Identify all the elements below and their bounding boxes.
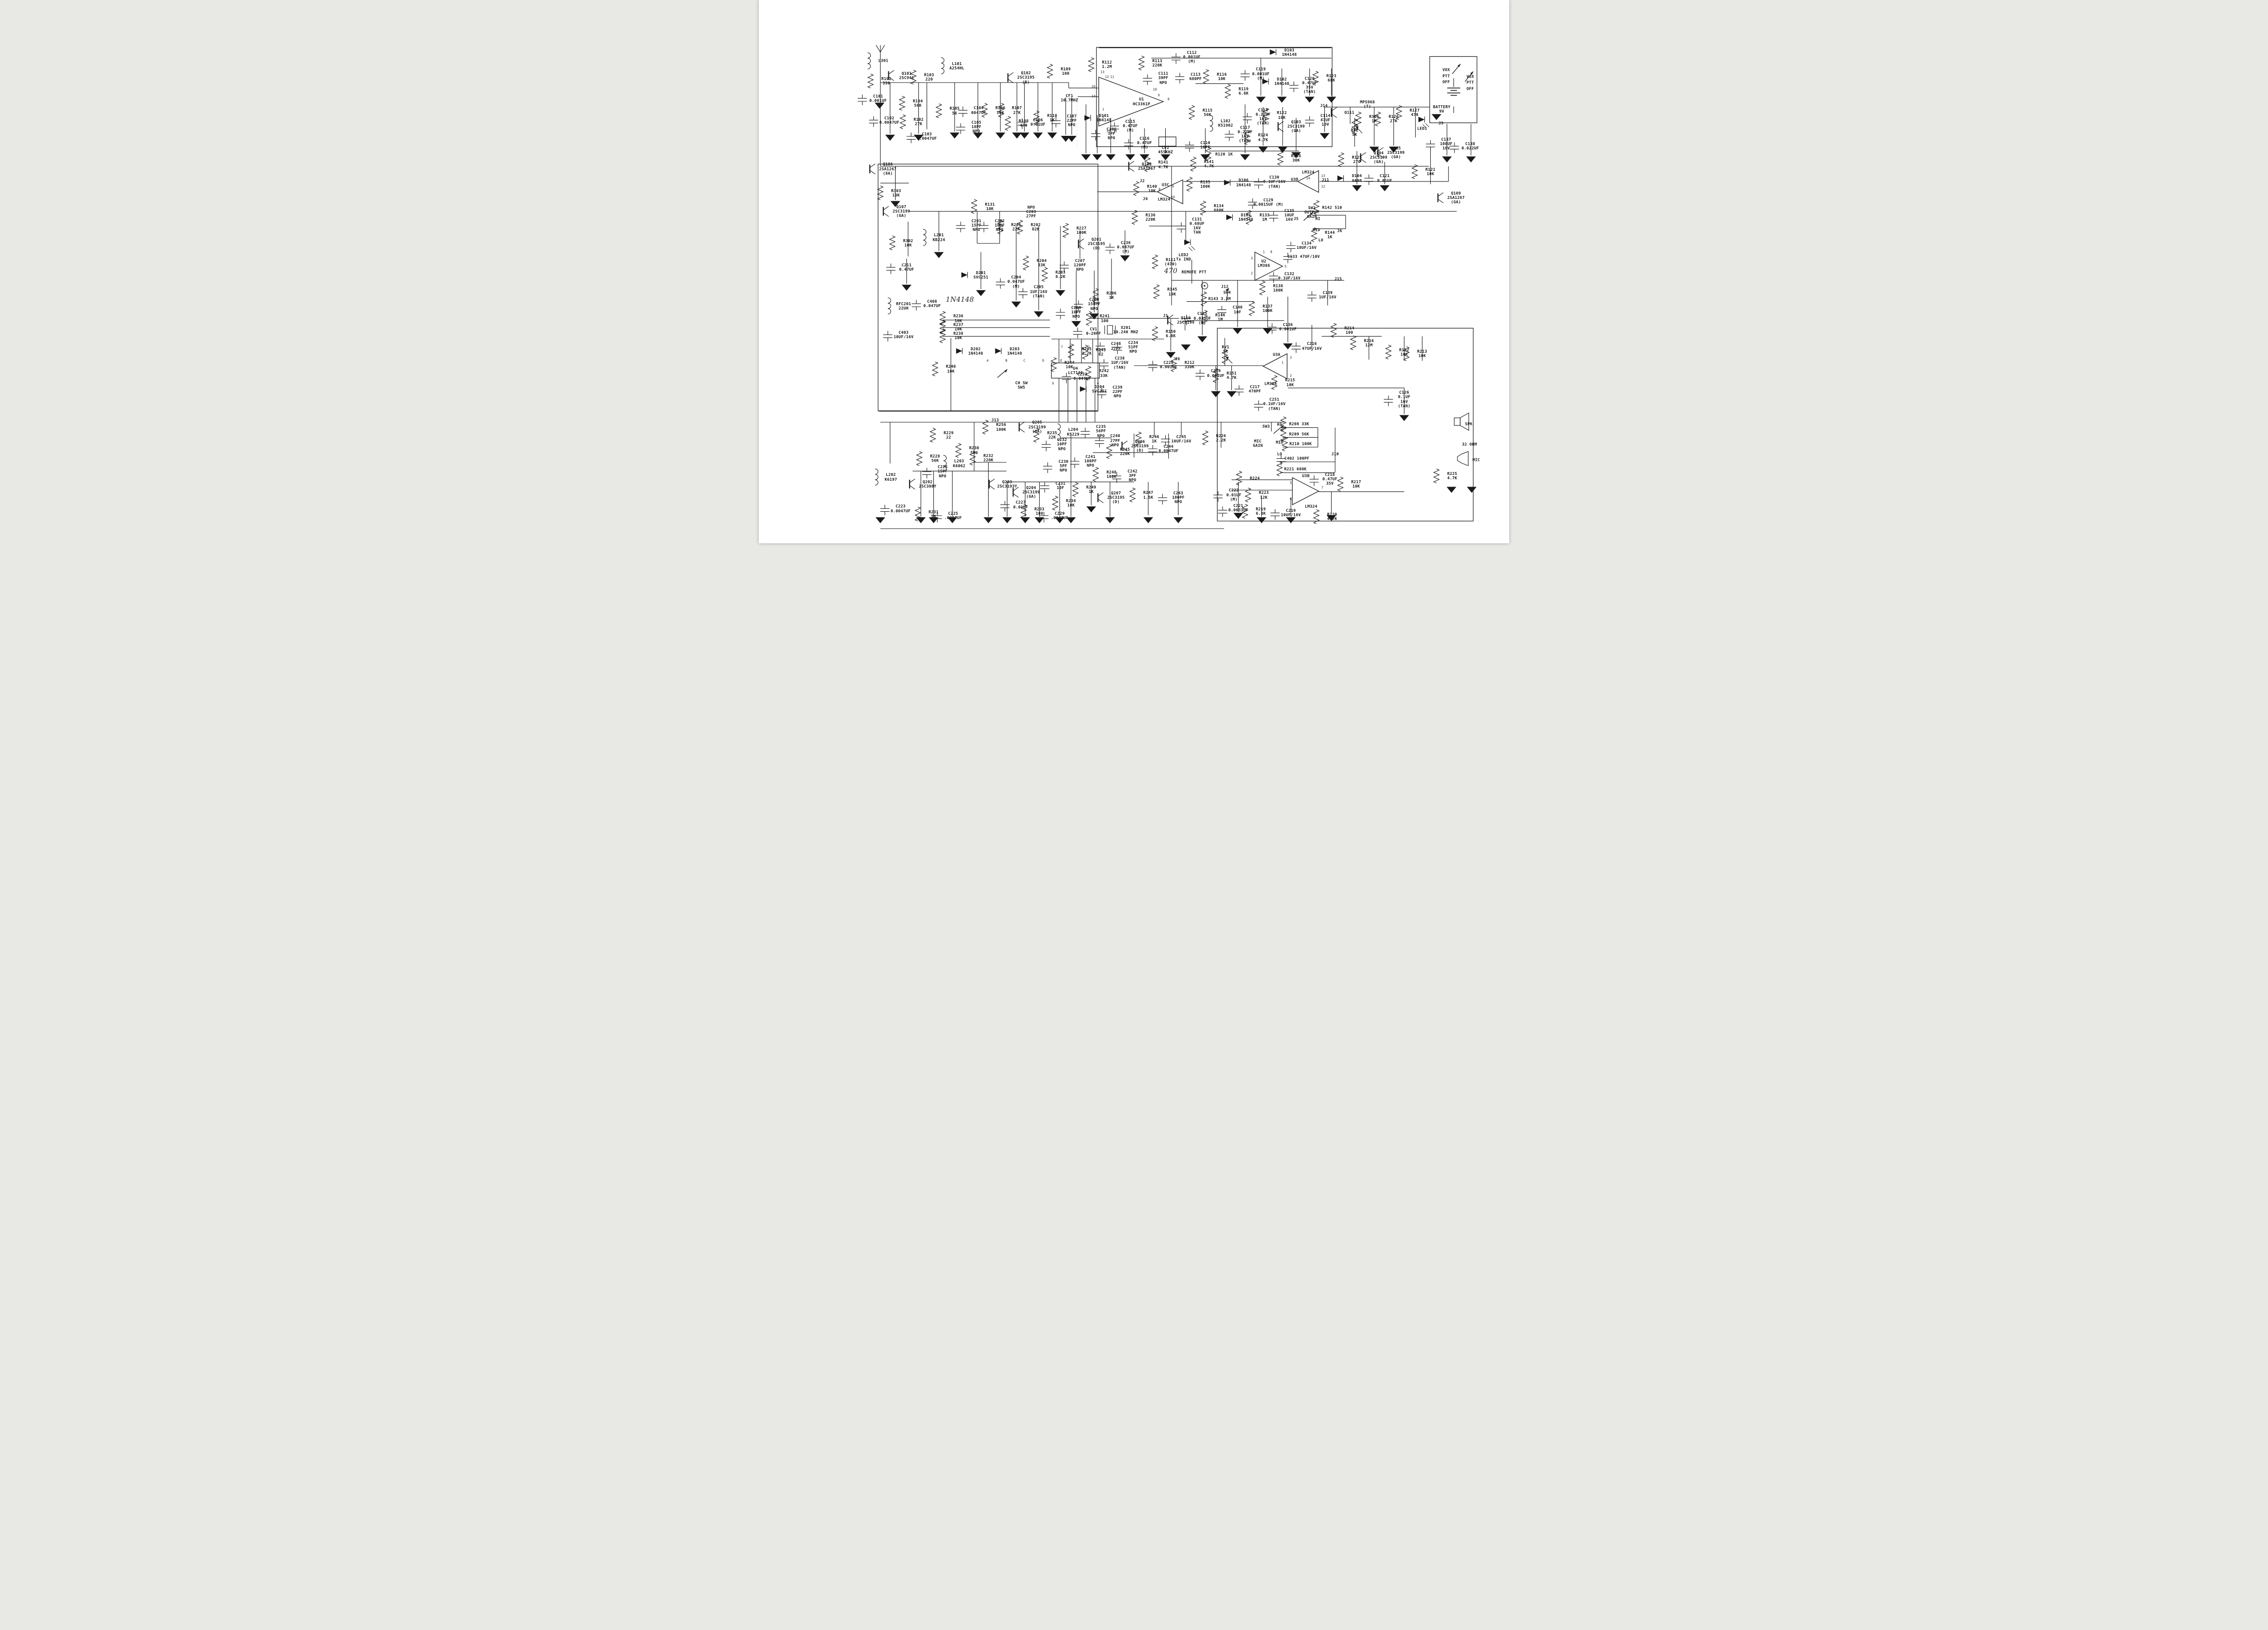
component-label: C229 .0047UF [1051, 511, 1068, 520]
component-label: C232 10PF NPO [1057, 438, 1067, 451]
component-label: C107 22PF NPO [1067, 114, 1077, 128]
component-label: R137 100K [1263, 304, 1273, 313]
component-label: R213 10K [1417, 349, 1427, 358]
component-label: R206 1K [1107, 291, 1117, 300]
component-label: R201 22K [1011, 223, 1021, 231]
component-label: J2 [1140, 179, 1144, 183]
component-label: R205 2.2K [1082, 346, 1092, 355]
component-label: R227 100K [1077, 226, 1087, 235]
component-label: C129 0.0015UF (M) [1254, 197, 1284, 206]
component-label: C402 100PF [1285, 456, 1309, 461]
schematic-labels-layer: L301R101 330Q101 2SC941R103 220C101 0.00… [759, 0, 1509, 543]
component-label: C408 0.047UF [923, 299, 941, 308]
component-label: R208 33K [1289, 422, 1309, 426]
component-label: MID [1276, 440, 1283, 444]
component-label: R142 510 [1322, 205, 1342, 210]
component-label: J6 [1337, 228, 1342, 233]
component-label: OFF [1467, 86, 1474, 91]
component-label: R217 10K [1351, 480, 1361, 489]
component-label: Q109 2SA1267 (GA) [1447, 191, 1465, 205]
component-label: R235 22K [1047, 431, 1058, 440]
component-label: C134 10UF/16V [1297, 241, 1317, 250]
component-label: C105 18PF NPO [971, 120, 981, 134]
component-label: J4 [1143, 196, 1148, 201]
component-label: C202 10PF NPO [995, 219, 1005, 232]
component-label: C120 0.47UF 35V (TAN) [1302, 76, 1317, 94]
component-label: C209 10PF NPO [1071, 306, 1081, 319]
component-label: R302 10K [903, 238, 914, 247]
component-label: C217 470PF [1249, 385, 1261, 393]
component-label: R120 1K [1215, 152, 1233, 156]
component-label: C102 0.0047UF [880, 115, 899, 124]
component-label: R140 10K [1147, 184, 1157, 193]
pin-label: 2 [1251, 272, 1253, 276]
component-label: R105 56 [950, 106, 960, 115]
pin-label: 15 [1107, 130, 1110, 133]
component-label: LM324 [1158, 197, 1171, 201]
component-label: VOX [1467, 74, 1474, 79]
component-label: R109 100 [1061, 67, 1071, 76]
component-label: D107 1N4148 [1239, 213, 1254, 222]
component-label: R124 4.7K [1258, 133, 1268, 142]
component-label: R231 56 [929, 509, 939, 518]
handwritten-note: 1N4148 [946, 297, 974, 305]
component-label: R224 [1250, 476, 1260, 480]
component-label: L102 K51902 [1218, 119, 1233, 128]
component-label: J15 [1335, 277, 1342, 281]
component-label: C236 0.047UF (M) [1117, 241, 1135, 254]
component-label: VOX [1442, 68, 1450, 72]
pin-label: 14 [1306, 177, 1310, 180]
component-label: R248 100K [1107, 470, 1117, 479]
component-label: D103 1N4148 [1282, 48, 1297, 56]
component-label: R243 82 [1096, 348, 1106, 357]
component-label: PTT [1442, 74, 1450, 78]
component-label: LM324 [1264, 381, 1277, 386]
component-label: R303 10K [891, 188, 901, 197]
schematic-page: L301R101 330Q101 2SC941R103 220C101 0.00… [759, 0, 1509, 543]
component-label: D104 0A90 [1352, 174, 1362, 182]
component-label: C138 0.022UF [1462, 142, 1479, 150]
component-label: U3C [1162, 182, 1169, 187]
component-label: R123 68K [1326, 74, 1337, 82]
component-label: R106 56K [995, 106, 1006, 114]
component-label: C238 1UF/16V (TAN) [1111, 356, 1128, 370]
component-label: LED1 [1417, 127, 1427, 131]
component-label: R138 100K [1273, 283, 1283, 292]
component-label: R215 10K [1285, 378, 1295, 387]
component-label: C211 0.47UF [899, 263, 914, 272]
component-label: Q207 2SC3195 (D) [1107, 491, 1125, 505]
component-label: L201 KB224 [932, 233, 945, 242]
component-label: Q107 2SC3199 (GA) [893, 205, 910, 218]
pin-label: 11 [1110, 75, 1114, 79]
component-label: C136 0.001UF [1279, 323, 1297, 331]
pin-label: 9 [1172, 185, 1174, 189]
component-label: R144 1K [1325, 230, 1335, 239]
component-label: R135 100K [1200, 179, 1210, 188]
component-label: R143 3.3M [1208, 296, 1231, 301]
component-label: L101 A254HL [949, 61, 964, 70]
component-label: SW3 [1262, 424, 1270, 429]
component-label: C140 10F [1233, 305, 1243, 314]
pin-label: 8 [1070, 345, 1072, 349]
component-label: C248 27PF [1111, 342, 1121, 350]
component-label: Q106 2SA1267 (8A) [879, 163, 897, 176]
component-label: C205 1UF/16V (TAN) [1030, 285, 1047, 299]
component-label: CF1 10.7MHZ [1061, 93, 1078, 102]
component-label: U3D [1291, 177, 1298, 181]
component-label: R127 470 [1410, 108, 1420, 117]
component-label: R118 30K [1291, 154, 1301, 163]
component-label: U3A [1273, 353, 1280, 357]
component-label: R223 12K [1259, 490, 1269, 499]
component-label: R113 220K [1152, 59, 1162, 67]
component-label: R237 10K [953, 323, 963, 331]
component-label: R236 10K [953, 314, 963, 323]
pin-label: 6 [1290, 498, 1292, 501]
component-label: R102 27K [914, 117, 924, 126]
pin-label: 13 [1321, 174, 1325, 178]
pin-label: 9 [1158, 94, 1159, 97]
component-label: C222 0.01UF (M) [1226, 489, 1241, 502]
component-label: MIC GAIN [1253, 439, 1263, 448]
component-label: R141 4.7K [1158, 160, 1169, 169]
component-label: R107 27K [1012, 106, 1022, 114]
pin-label: 12 [1321, 185, 1325, 189]
component-label: LO [1277, 452, 1282, 456]
component-label: C111 39PF NPO [1158, 71, 1169, 85]
component-label: Q105 2SC3199 (GA) [1387, 146, 1404, 160]
component-label: C227 0.01UF [1013, 500, 1028, 509]
component-label: C113 680PF [1190, 72, 1202, 81]
component-label: C116 0.47UF (M) [1137, 136, 1152, 150]
component-label: Q108 2SA1267 [1138, 162, 1156, 171]
component-label: RFC201 22UH [896, 301, 911, 310]
component-label: RV1 5K [1222, 345, 1229, 354]
component-label: D102 1N4148 [1274, 77, 1289, 86]
pin-label: 16 [1092, 85, 1095, 89]
component-label: C112 0.001UF (M) [1183, 50, 1201, 64]
component-label: R133 1M [1259, 213, 1270, 222]
component-label: R249 1K [1086, 485, 1096, 494]
component-label: REMOTE PTT [1182, 270, 1207, 275]
component-label: U3B [1302, 474, 1309, 478]
pin-label: 7 [1061, 345, 1063, 349]
component-label: R108 470 [1019, 119, 1029, 128]
component-label: LO [1319, 238, 1323, 242]
component-label: J12 [1221, 285, 1228, 289]
component-label: OFF [1442, 80, 1450, 84]
component-label: R238 10K [953, 331, 963, 340]
pin-label: 5 [1285, 265, 1287, 268]
component-label: C243 100PF NPO [1172, 491, 1185, 505]
component-label: D203 1N4148 [1007, 346, 1022, 355]
component-label: Q110 2SC3199 [1177, 315, 1194, 324]
pin-label: 1 [1088, 345, 1090, 349]
pin-label: A [987, 359, 989, 362]
component-label: C103 0.0047UF [917, 132, 937, 141]
component-label: C106 0.01UF [1030, 118, 1045, 127]
pin-label: 8 [1168, 98, 1170, 101]
component-label: R301 1K [1369, 114, 1379, 123]
component-label: R132 10K [1399, 348, 1409, 357]
component-label: Q204 2SC3199 (GA) [1023, 486, 1040, 499]
pin-label: D [1042, 359, 1044, 362]
component-label: R256 100K [996, 423, 1006, 431]
component-label: R212 330K [1185, 360, 1195, 369]
component-label: C117 0.22UF 16V (TAN) [1238, 125, 1253, 143]
component-label: C139 1UF/16V [1319, 291, 1337, 299]
component-label: C110 10PF [1200, 141, 1210, 149]
component-label: RV2 5K [1351, 128, 1358, 137]
pin-label: 7 [1322, 486, 1323, 489]
pin-label: 1 [1263, 250, 1265, 254]
component-label: R233 100 [1034, 507, 1044, 516]
pin-label: 10 [1171, 196, 1175, 199]
component-label: R210 100K [1289, 441, 1312, 446]
component-label: R229 22 [944, 431, 954, 440]
pin-label: 14 [1092, 95, 1095, 98]
component-label: R115 56K [1203, 108, 1213, 117]
component-label: R225 4.7K [1447, 472, 1457, 480]
component-label: R241 100 [1100, 314, 1110, 323]
component-label: Q111 [1344, 110, 1354, 114]
component-label: C132 0.1UF/16V [1278, 272, 1301, 280]
component-label: R119 6.8K [1239, 87, 1249, 96]
component-label: R131 10K [985, 202, 995, 211]
component-label: BATTERY 9V [1433, 105, 1451, 114]
component-label: R244 10K [1064, 360, 1075, 369]
component-label: R204 33K [1037, 259, 1047, 267]
component-label: R112 1.2M [1102, 60, 1112, 69]
component-label: C240 27PF NPO [1110, 434, 1121, 448]
component-label: PTT [1467, 81, 1474, 85]
component-label: X201 10.240 MHZ [1113, 326, 1138, 334]
component-label: HI [1277, 422, 1282, 426]
component-label: R240 10K [946, 364, 956, 373]
component-label: C208 150PF NPO [1088, 297, 1101, 311]
component-label: CF2 455KHZ [1158, 146, 1173, 154]
component-label: C233 0.047UF [1074, 372, 1091, 381]
component-label: C135 10UF 16V [1284, 209, 1294, 222]
pin-label: 8 [1158, 188, 1160, 191]
component-label: C137 100UF 10V [1440, 137, 1452, 151]
component-label: R242 33K [1099, 369, 1109, 377]
component-label: C218 0.47UF 35V [1322, 473, 1338, 486]
component-label: LM324 [1305, 504, 1318, 508]
component-label: C114 47UF 10V [1321, 114, 1331, 127]
component-label: C223 0.0047UF [891, 504, 911, 513]
component-label: MID [1313, 228, 1320, 232]
pin-label: 5 [1290, 481, 1292, 485]
component-label: D204 SVC251 [1092, 385, 1107, 393]
component-label: R103 220 [924, 73, 934, 81]
component-label: C214 0.001UF [1207, 369, 1224, 377]
component-label: C221 0.0033UF (M) [1228, 504, 1248, 517]
pin-label: 3 [1251, 257, 1253, 260]
component-label: C235 56PF NPO [1096, 424, 1106, 438]
component-label: C119 0.001UF (M) [1252, 67, 1270, 81]
pin-label: B [1005, 359, 1007, 362]
component-label: C231 10F [1056, 481, 1066, 490]
component-label: R245 220K [1120, 447, 1130, 456]
component-label: Q202 2SC380Y [919, 480, 936, 489]
component-label: C207 120PF NPO [1074, 259, 1086, 272]
component-label: J8 [1175, 357, 1180, 361]
component-label: R151 4.7K [1226, 371, 1237, 380]
pin-label: C [1024, 359, 1026, 362]
component-label: R221 680K [1284, 467, 1306, 471]
pin-label: 12 [1105, 75, 1109, 79]
component-label: C251 0.1UF/16V (TAN) [1263, 397, 1286, 411]
component-label: J5 [1294, 217, 1299, 221]
pin-label: 1 [1282, 361, 1284, 364]
component-label: C126 0.1UF 16V (TAN) [1398, 391, 1411, 408]
component-label: LM324 [1302, 170, 1315, 174]
component-label: R111 (470) [1164, 258, 1177, 266]
component-label: C204 0.047UF (M) [1008, 275, 1025, 289]
component-label: R232 220K [983, 454, 994, 462]
component-label: C125 0.033UF (M) [1193, 312, 1211, 326]
pin-label: 6 [1115, 130, 1117, 133]
component-label: R247 1.5K [1143, 490, 1154, 499]
component-label: MIC [1472, 457, 1480, 462]
component-label: R226 2.2K [1216, 434, 1226, 442]
component-label: C115 0.47UF (M) [1123, 119, 1138, 133]
component-label: R126 27K [1388, 114, 1399, 123]
component-label: C101 0.001UF [869, 94, 887, 103]
pin-label: 9 [1052, 382, 1054, 385]
component-label: Q101 2SC941 [899, 71, 914, 80]
pin-label: 1 [1102, 108, 1104, 112]
component-label: R219 6.8K [1256, 507, 1266, 516]
component-label: R145 10K [1167, 287, 1177, 296]
handwritten-note: 470 [1164, 268, 1177, 276]
component-label: R202 82K [1031, 223, 1041, 231]
component-label: C130 0.1UF/16V (TAN) [1263, 175, 1286, 189]
pin-label: 8 [1271, 250, 1273, 254]
component-label: C201 15PF NPO [971, 219, 981, 232]
component-label: D201 SVC251 [974, 271, 989, 279]
component-label: C220 0.001UF [1160, 360, 1177, 369]
component-label: U1 HC3361P [1133, 97, 1150, 106]
component-label: C225 .0047UF [945, 511, 962, 520]
component-label: Q104 2SC3199 (GA) [1370, 151, 1387, 164]
component-label: L202 K6197 [884, 473, 897, 481]
component-label: J3 [1438, 121, 1443, 126]
component-label: C403 10UF/16V [894, 330, 914, 339]
component-label: R230 560 [969, 446, 979, 455]
component-label: C219 10UF/16V [1281, 508, 1301, 517]
component-label: R116 10K [1217, 72, 1227, 81]
component-label: C241 100PF NPO [1084, 455, 1097, 468]
component-label: R110 1K [1047, 114, 1058, 122]
component-label: C244 0.0047UF [1158, 444, 1178, 453]
component-label: CV1 0-20PF [1086, 327, 1101, 336]
component-label: C104 0047UF [971, 106, 986, 114]
component-label: LED2 Tx IND [1176, 253, 1191, 261]
component-label: U2 LM386 [1257, 259, 1270, 268]
component-label: D106 1N4148 [1236, 178, 1251, 187]
component-label: L301 [879, 59, 889, 63]
component-label: L203 K6062 [953, 459, 965, 468]
component-label: C245 10UF/16V [1171, 435, 1191, 443]
component-label: J10 [1331, 452, 1338, 456]
component-label: R234 10K [1066, 499, 1076, 507]
component-label: Q201 2SC3195 (D) [1088, 237, 1105, 251]
component-label: R214 100 [1344, 326, 1354, 335]
pin-label: 4 [1097, 382, 1099, 385]
component-label: C216 47UF/16V [1302, 342, 1322, 350]
component-label: Q206 2SC3199 (D) [1131, 440, 1149, 453]
pin-label: 13 [1100, 70, 1104, 74]
component-label: R101 330 [881, 77, 892, 85]
component-label: R150 6.8K [1166, 329, 1176, 338]
pin-label: 10 [1153, 88, 1157, 91]
component-label: R136 220K [1145, 213, 1156, 222]
pin-label: 3 [1290, 356, 1292, 359]
component-label: R220 4.7K [1327, 512, 1338, 521]
component-label: J13 [992, 418, 999, 422]
component-label: HI [1315, 217, 1320, 221]
component-label: C239 22PF NPO [1112, 385, 1123, 399]
component-label: J14 [1320, 104, 1327, 108]
pin-label: 2 [1102, 115, 1104, 118]
component-label: R203 8.2K [1056, 270, 1066, 278]
pin-label: E [1060, 359, 1062, 362]
component-label: R121 10K [1425, 167, 1436, 176]
component-label: C242 3PF NPO [1127, 469, 1138, 483]
pin-label: 2 [1290, 374, 1292, 377]
component-label: MPS968 (T) [1360, 100, 1375, 109]
component-label: R216 12M [1364, 339, 1374, 347]
component-label: Q102 2SC3195 (B) [1017, 71, 1035, 84]
component-label: C230 5PF NPO [1059, 459, 1069, 473]
component-label: R104 56K [913, 99, 923, 108]
component-label: D202 1N4148 [968, 346, 983, 355]
component-label: CH SW SW5 [1015, 381, 1028, 390]
component-label: SPK [1465, 422, 1472, 426]
component-label: R125 270 [1352, 155, 1362, 164]
component-label: J1 [1163, 313, 1168, 318]
component-label: L204 K5229 [1067, 427, 1079, 436]
component-label: C234 51PF NPO [1128, 341, 1139, 354]
component-label: Q103 2SC3199 (GA) [1288, 120, 1305, 133]
component-label: R209 56K [1289, 432, 1309, 436]
component-label: R146 1M [1215, 313, 1225, 322]
component-label: R141 4.7K [1204, 160, 1214, 168]
component-label: C131 0.68UF 16V TAN [1190, 217, 1205, 235]
component-label: C118 0.22UF 16V (TAN) [1256, 108, 1271, 126]
component-label: C133 47UF/10V [1288, 254, 1320, 259]
component-label: J11 [1322, 178, 1329, 182]
component-label: SW4 [1224, 290, 1231, 294]
component-label: Q203 2SC3193Y [997, 480, 1017, 489]
component-label: R246 1K [1149, 435, 1159, 443]
component-label: R122 10K [1277, 111, 1287, 119]
component-label: Q205 2SC3199 (6A) [1028, 421, 1046, 434]
component-label: 32 OHM [1462, 442, 1477, 447]
component-label: NPO C203 27PF [1026, 205, 1036, 219]
component-label: C121 0.01UF [1377, 174, 1392, 182]
component-label: R134 680K [1214, 204, 1224, 212]
component-label: R228 56K [930, 454, 940, 463]
component-label: C226 15PF NPO [938, 465, 948, 478]
